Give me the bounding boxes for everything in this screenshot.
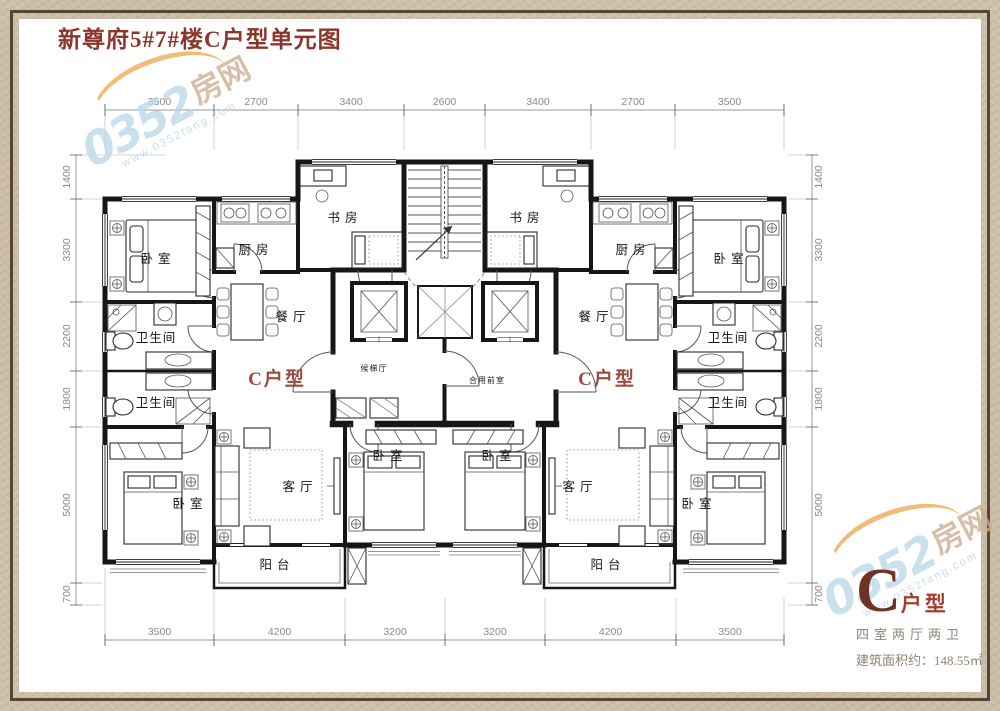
dim-top-0: 3500 [148, 96, 172, 108]
legend-unit-suffix: 户型 [901, 592, 949, 616]
room-label-balcony-right: 阳台 [590, 557, 625, 572]
room-label-dining-left: 餐厅 [275, 309, 310, 324]
dim-top-2: 3400 [339, 96, 363, 108]
room-label-bedroom-bc-left: 卧室 [372, 448, 407, 463]
room-label-balcony-left: 阳台 [259, 557, 294, 572]
dim-top-3: 2600 [433, 96, 457, 108]
legend-area-text: 建筑面积约：148.55㎡ [856, 650, 996, 669]
dim-left-2: 2200 [61, 324, 73, 348]
room-label-dining-right: 餐厅 [578, 309, 613, 324]
dim-right-2: 2200 [813, 324, 825, 348]
dim-bottom-2: 3200 [383, 626, 407, 638]
dim-top-1: 2700 [244, 96, 268, 108]
legend-title: C户型 [856, 564, 996, 620]
room-label-study-left: 书房 [327, 210, 362, 225]
room-label-kitchen-right: 厨房 [615, 242, 650, 257]
dim-right-0: 1400 [813, 165, 825, 189]
room-label-living-left: 客厅 [282, 479, 317, 494]
dim-top-5: 2700 [621, 96, 645, 108]
room-label-kitchen-left: 厨房 [238, 242, 273, 257]
room-label-bedroom-tr-right: 卧室 [713, 251, 748, 266]
dim-left-3: 1800 [61, 387, 73, 411]
dim-bottom-5: 3500 [718, 626, 742, 638]
dim-top-4: 3400 [526, 96, 550, 108]
floor-plan-svg: 3500 2700 3400 2600 3400 2700 3500 3500 … [0, 0, 1000, 711]
room-label-bath1-right: 卫生间 [708, 331, 749, 345]
room-label-shared-vestibule: 合用前室 [469, 375, 505, 385]
dim-left-5: 700 [61, 585, 73, 603]
legend-rooms-summary: 四室两厅两卫 [856, 624, 996, 643]
dim-top-6: 3500 [718, 96, 742, 108]
room-label-bedroom-bl-left: 卧室 [172, 496, 207, 511]
dim-bottom-3: 3200 [483, 626, 507, 638]
room-label-bedroom-tl-left: 卧室 [140, 251, 175, 266]
dim-bottom-4: 4200 [599, 626, 623, 638]
dim-right-1: 3300 [813, 238, 825, 262]
legend-unit-letter: C [856, 557, 901, 625]
room-label-study-right: 书房 [509, 210, 544, 225]
dim-bottom-0: 3500 [148, 626, 172, 638]
room-label-bath2-left: 卫生间 [136, 396, 177, 410]
dim-bottom-1: 4200 [268, 626, 292, 638]
room-label-living-right: 客厅 [562, 479, 597, 494]
room-label-elevator-hall: 候梯厅 [361, 363, 388, 373]
floor-plan-page: 3500 2700 3400 2600 3400 2700 3500 3500 … [0, 0, 1000, 711]
dim-right-5: 700 [813, 585, 825, 603]
dim-right-4: 5000 [813, 493, 825, 517]
room-label-bath1-left: 卫生间 [136, 331, 177, 345]
dim-right-3: 1800 [813, 387, 825, 411]
dim-left-4: 5000 [61, 493, 73, 517]
unit-type-label-left: C户型 [248, 367, 306, 390]
dim-left-1: 3300 [61, 238, 73, 262]
room-label-bedroom-br-right: 卧室 [681, 496, 716, 511]
unit-type-label-right: C户型 [578, 367, 636, 390]
unit-legend: C户型 四室两厅两卫 建筑面积约：148.55㎡ [856, 564, 996, 669]
dim-left-0: 1400 [61, 165, 73, 189]
room-label-bath2-right: 卫生间 [708, 396, 749, 410]
page-title: 新尊府5#7#楼C户型单元图 [58, 20, 342, 54]
room-label-bedroom-bc-right: 卧室 [481, 448, 516, 463]
